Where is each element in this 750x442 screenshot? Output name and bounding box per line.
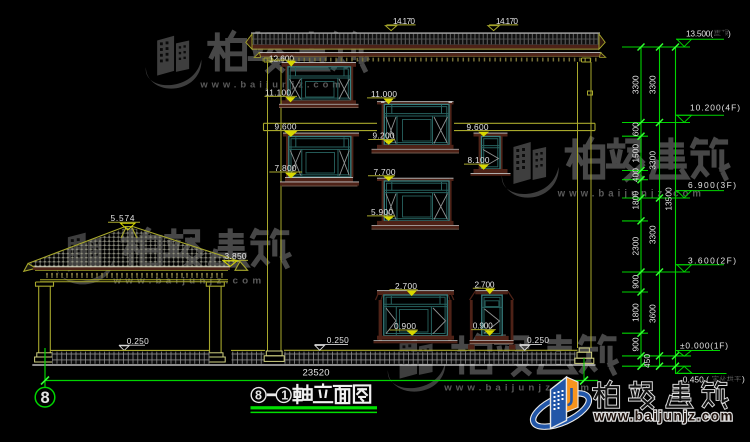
svg-text:2300: 2300 [631,237,641,256]
svg-text:3300: 3300 [648,151,658,170]
svg-text:0.900: 0.900 [473,320,493,330]
svg-text:400: 400 [631,168,641,182]
svg-text:0.250: 0.250 [127,336,149,346]
svg-text:13.500(: 13.500( [686,29,713,39]
svg-text:1800: 1800 [631,191,641,210]
svg-text:23520: 23520 [303,367,330,378]
svg-text:600: 600 [631,122,641,136]
svg-text:1: 1 [281,389,288,403]
svg-text:3300: 3300 [631,75,641,94]
svg-text:1500: 1500 [631,144,641,163]
svg-text:3300: 3300 [648,75,658,94]
svg-text:3.600(2F): 3.600(2F) [688,255,736,265]
svg-text:3.850: 3.850 [225,251,247,261]
svg-text:3300: 3300 [648,225,658,244]
svg-text:13500: 13500 [664,187,674,211]
svg-text:www.baijunjz.com: www.baijunjz.com [593,409,733,424]
svg-text:): ) [742,374,745,384]
svg-text:900: 900 [631,337,641,351]
svg-text:3600: 3600 [648,304,658,323]
svg-text:6.900(3F): 6.900(3F) [688,180,736,190]
svg-text:8: 8 [255,389,262,403]
svg-text:8.100: 8.100 [468,155,490,165]
svg-text:0.250: 0.250 [527,335,549,345]
svg-text:5.574: 5.574 [111,213,135,223]
svg-text:±0.000(1F): ±0.000(1F) [680,341,728,351]
svg-text:0.250: 0.250 [327,335,349,345]
svg-text:450: 450 [642,354,652,368]
svg-text:9.600: 9.600 [467,122,489,132]
svg-text:900: 900 [631,274,641,288]
svg-text:9.600: 9.600 [275,121,297,131]
svg-text:): ) [728,29,731,39]
svg-text:8: 8 [41,389,50,407]
svg-text:1800: 1800 [631,303,641,322]
svg-text:10.200(4F): 10.200(4F) [690,103,740,113]
